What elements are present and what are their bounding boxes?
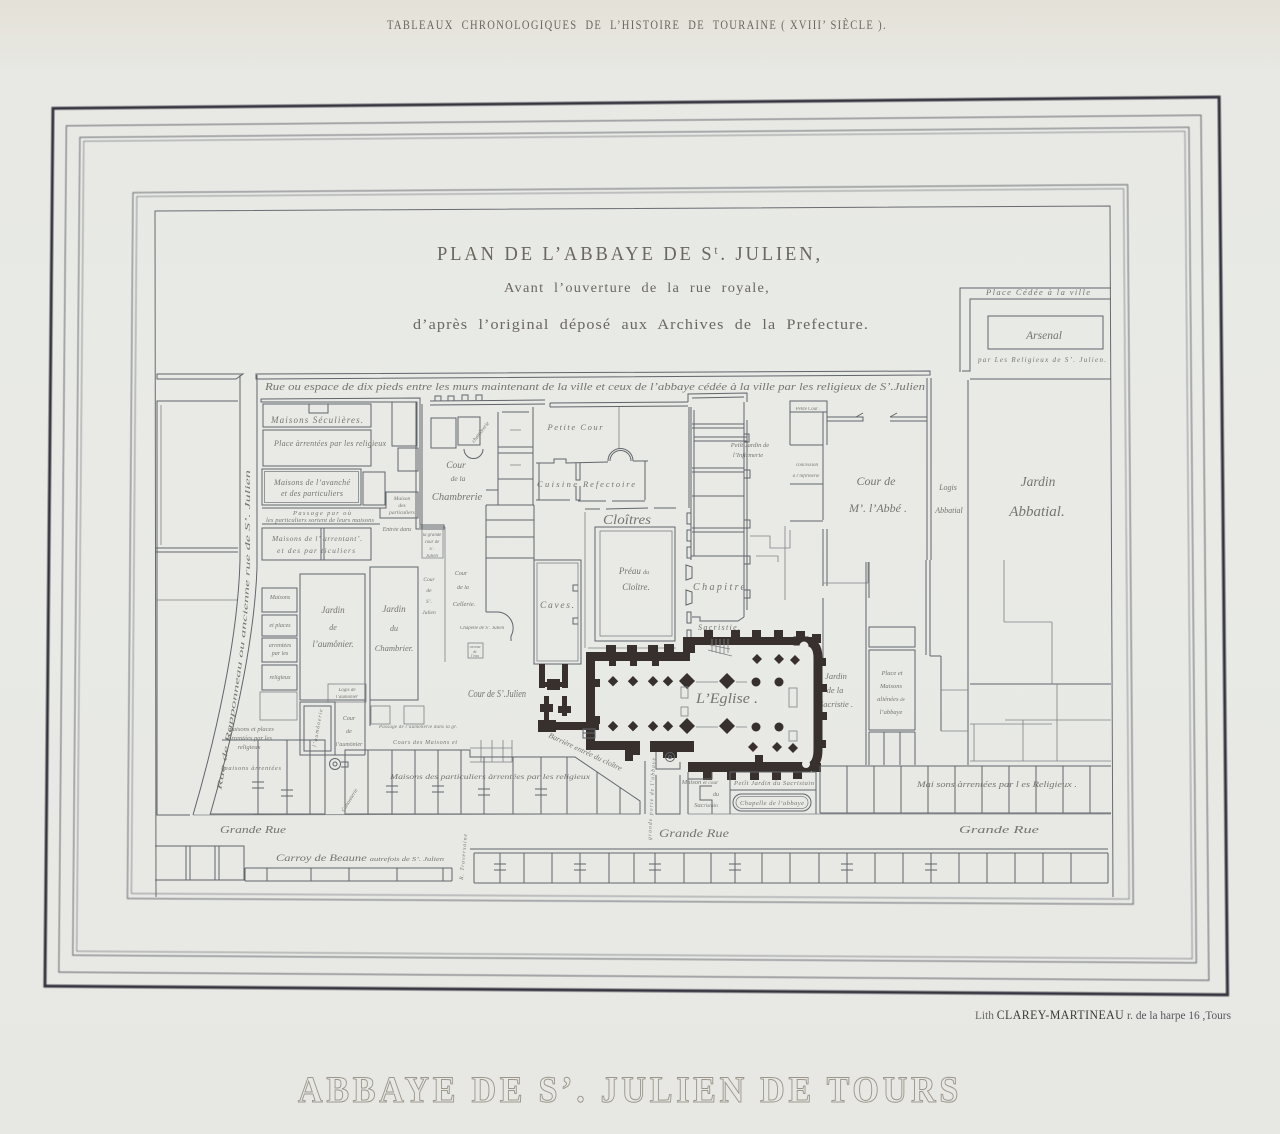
svg-text:de la: de la [457, 585, 469, 591]
svg-text:de la: de la [827, 685, 844, 695]
svg-text:ABBAYE DE S’. JULIEN DE TOURS: ABBAYE DE S’. JULIEN DE TOURS [298, 1070, 962, 1111]
svg-text:Rue ou espace de dix pieds ent: Rue ou espace de dix pieds entre les mur… [264, 382, 925, 393]
svg-text:religieux: religieux [269, 675, 290, 681]
svg-text:Arsenal: Arsenal [1025, 330, 1062, 342]
svg-text:Préau du: Préau du [618, 566, 649, 576]
svg-text:Grande Rue: Grande Rue [959, 824, 1039, 836]
svg-text:d’après l’original déposé a: d’après l’original déposé aux Archives d… [413, 317, 869, 333]
svg-text:Cour: Cour [455, 571, 468, 577]
svg-text:concession: concession [796, 463, 818, 468]
svg-text:Cuisine: Cuisine [537, 479, 577, 489]
svg-text:particuliers: particuliers [388, 510, 415, 516]
svg-text:Entrée dans: Entrée dans [382, 527, 412, 533]
svg-text:à l’infirmerie: à l’infirmerie [793, 474, 821, 479]
svg-text:Chapelle de l’abbaye: Chapelle de l’abbaye [740, 800, 804, 807]
svg-text:Caves.: Caves. [540, 601, 574, 611]
svg-text:Logis de: Logis de [337, 688, 356, 693]
svg-text:Mai sons àrrentées par l es R: Mai sons àrrentées par l es Religieux . [916, 780, 1077, 789]
svg-text:de: de [329, 623, 337, 632]
svg-text:religieux: religieux [238, 744, 261, 751]
svg-text:la grande: la grande [423, 533, 442, 538]
svg-text:S’.: S’. [429, 547, 434, 552]
svg-text:par Les Religieux de S’. Julie: par Les Religieux de S’. Julien. [977, 356, 1106, 364]
svg-text:L’Eglise .: L’Eglise . [695, 691, 758, 707]
svg-text:Petite Cour .: Petite Cour . [795, 407, 821, 412]
svg-text:Grande Rue: Grande Rue [220, 824, 286, 836]
svg-text:Maison: Maison [393, 496, 411, 502]
svg-text:l’aumônerie: l’aumônerie [312, 708, 325, 747]
svg-text:Jardin: Jardin [1021, 474, 1056, 489]
svg-text:Maisons des particuliers àrren: Maisons des particuliers àrrentées par l… [389, 772, 591, 781]
svg-text:Chapitre: Chapitre [693, 582, 746, 593]
svg-text:du: du [390, 624, 398, 633]
svg-text:PLAN DE L’ABBAYE DE St. JULIEN: PLAN DE L’ABBAYE DE St. JULIEN, [437, 243, 823, 265]
svg-text:Cour: Cour [446, 461, 466, 471]
svg-text:Cour de: Cour de [857, 474, 897, 488]
svg-text:maisons àrrentées: maisons àrrentées [223, 765, 281, 772]
svg-text:Cellerie.: Cellerie. [453, 601, 476, 608]
svg-text:l’abbaye: l’abbaye [880, 709, 903, 716]
svg-text:Abbatial.: Abbatial. [1008, 504, 1064, 520]
svg-text:Cour: Cour [423, 577, 435, 583]
svg-text:Cour: Cour [343, 716, 356, 722]
svg-text:Julien: Julien [426, 554, 438, 559]
svg-text:Passage de l’aumônerie dans la: Passage de l’aumônerie dans la gr. [378, 725, 457, 730]
svg-text:Place àrrentées par les religi: Place àrrentées par les religieux [273, 439, 386, 448]
svg-text:Maisons: Maisons [879, 683, 903, 690]
svg-text:de: de [426, 588, 432, 594]
svg-text:Cloître.: Cloître. [622, 582, 649, 592]
svg-text:arrentées par les: arrentées par les [228, 735, 272, 742]
svg-text:Place et: Place et [880, 670, 902, 677]
svg-text:de: de [346, 729, 352, 735]
svg-text:cour de: cour de [425, 540, 440, 545]
svg-text:Logis: Logis [938, 483, 957, 492]
svg-text:Grande Rue: Grande Rue [659, 826, 730, 840]
svg-text:l’aumônier.: l’aumônier. [312, 639, 353, 649]
svg-text:Maisons Séculières.: Maisons Séculières. [270, 415, 363, 425]
svg-text:Jardin: Jardin [321, 605, 345, 615]
svg-text:Carroy de Beaune autrefois de: Carroy de Beaune autrefois de S’. Julien [276, 854, 444, 864]
svg-text:l’Infirmerie: l’Infirmerie [733, 452, 763, 459]
svg-text:Julien: Julien [422, 610, 436, 616]
svg-text:et places: et places [269, 623, 291, 629]
svg-text:Canonnerie: Canonnerie [341, 787, 360, 813]
svg-text:Chapelle de S’. Julien: Chapelle de S’. Julien [460, 626, 505, 631]
svg-text:l’aumônier: l’aumônier [336, 695, 358, 700]
svg-text:Maisons de l’avanché: Maisons de l’avanché [273, 478, 350, 487]
svg-text:par les: par les [271, 651, 289, 657]
svg-text:des: des [398, 503, 405, 509]
svg-text:M’. l’Abbé .: M’. l’Abbé . [848, 501, 907, 515]
svg-text:l’eau: l’eau [471, 654, 479, 658]
svg-text:chambrerie: chambrerie [471, 420, 492, 444]
svg-text:Sacristie .: Sacristie . [819, 699, 853, 709]
svg-text:Lith CLAREY-MARTINEAU r. de la: Lith CLAREY-MARTINEAU r. de la harpe 16 … [975, 1008, 1231, 1022]
svg-text:aliénées de: aliénées de [877, 696, 905, 703]
svg-text:du: du [713, 792, 719, 798]
svg-text:Refectoire: Refectoire [582, 479, 635, 489]
svg-text:Maisons: Maisons [269, 595, 291, 601]
svg-text:Abbatial: Abbatial [934, 506, 963, 515]
svg-text:R. Traversaine: R. Traversaine [459, 833, 469, 881]
svg-text:Jardin: Jardin [825, 671, 847, 681]
svg-text:Cours des Maisons et: Cours des Maisons et [393, 740, 457, 746]
svg-text:Chambrerie: Chambrerie [432, 492, 483, 503]
svg-text:maisons et places: maisons et places [228, 726, 274, 733]
svg-text:Chambrier.: Chambrier. [375, 643, 414, 653]
svg-text:Maisons de l’ arrentant’.: Maisons de l’ arrentant’. [271, 534, 362, 543]
svg-text:Barrière entrée du cloître: Barrière entrée du cloître [547, 731, 624, 773]
svg-text:l’aumônier: l’aumônier [336, 742, 363, 748]
svg-text:Petît Jardin du Sacristain: Petît Jardin du Sacristain [733, 780, 814, 787]
svg-text:caveau: caveau [470, 645, 481, 649]
svg-text:Maison et cour: Maison et cour [681, 779, 719, 786]
svg-text:de la: de la [451, 474, 466, 483]
svg-text:arrentées: arrentées [269, 643, 292, 649]
svg-text:Jardin: Jardin [382, 604, 406, 614]
svg-text:et des par ticuliers: et des par ticuliers [277, 546, 355, 555]
svg-text:Passage par où: Passage par où [292, 510, 352, 517]
svg-text:Sacristain: Sacristain [694, 802, 718, 809]
svg-text:et des particuliers: et des particuliers [281, 489, 343, 498]
svg-text:TABLEAUX CHRONOLOGIQUES DE: TABLEAUX CHRONOLOGIQUES DE L’HISTOIRE DE… [387, 18, 887, 32]
svg-text:les particuliers sortent de le: les particuliers sortent de leurs maison… [266, 517, 374, 524]
svg-text:Cour de S’.Julien: Cour de S’.Julien [468, 689, 526, 700]
svg-text:Cloîtres: Cloîtres [603, 512, 651, 527]
svg-text:Petite Cour: Petite Cour [547, 422, 604, 432]
svg-text:Avant l’ouverture de la ru: Avant l’ouverture de la rue royale, [504, 280, 770, 295]
svg-text:S’.: S’. [426, 599, 432, 605]
svg-text:Petît Jardin de: Petît Jardin de [730, 442, 770, 449]
